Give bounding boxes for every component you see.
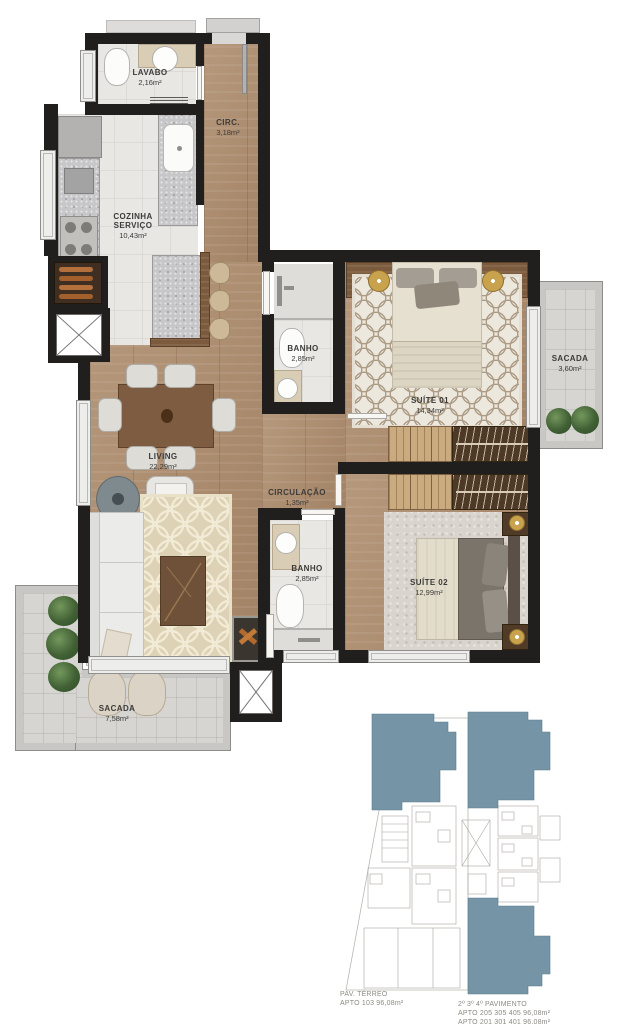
stool-icon [209, 318, 230, 340]
plant-icon [571, 406, 599, 434]
wall [262, 250, 540, 262]
pantry-shelf-icon [54, 262, 102, 304]
wall [333, 262, 345, 412]
plant-icon [48, 596, 80, 626]
entry-door [242, 44, 247, 94]
chair-icon [98, 398, 122, 432]
sliding-door [88, 656, 230, 674]
bed-icon [392, 262, 482, 388]
wall [85, 104, 196, 115]
window [76, 400, 91, 506]
kitchen-peninsula [152, 255, 204, 341]
entry-opening [212, 33, 246, 44]
wall [333, 508, 345, 662]
shower-icon [270, 628, 333, 652]
stool-icon [209, 262, 230, 284]
shaft-icon [56, 314, 102, 356]
wall [196, 44, 204, 66]
door [263, 271, 270, 315]
highlight-unit [468, 898, 550, 994]
door [301, 509, 335, 515]
window [368, 650, 470, 663]
toilet-icon [276, 584, 304, 628]
door [197, 66, 202, 100]
shaft-icon [239, 670, 273, 714]
bar-counter [150, 338, 210, 347]
sink-icon [275, 532, 297, 554]
wall [258, 33, 270, 262]
chair-icon [126, 364, 158, 388]
towel-bar-icon [150, 97, 188, 104]
dining-table-icon [118, 384, 214, 448]
wardrobe-drawers-icon [388, 474, 452, 510]
wall [262, 402, 345, 414]
pouf-icon [88, 670, 126, 716]
highlight-unit [468, 712, 550, 808]
coffee-table-icon [160, 556, 206, 626]
plant-icon [48, 662, 80, 692]
fridge-icon [58, 116, 102, 158]
plant-icon [46, 628, 80, 660]
pouf-icon [128, 670, 166, 716]
window [283, 650, 339, 663]
circulacao-floor [262, 412, 345, 510]
highlight-unit [372, 714, 456, 810]
toilet-icon [104, 48, 130, 86]
chair-icon [126, 446, 158, 470]
window [526, 306, 541, 428]
wall [262, 314, 274, 412]
lamp-icon [509, 515, 525, 531]
plant-icon [546, 408, 572, 434]
toilet-icon [279, 328, 305, 368]
wall [85, 33, 212, 44]
wall [528, 472, 540, 662]
shower-icon [274, 264, 333, 320]
window [80, 50, 96, 102]
chair-icon [164, 446, 196, 470]
stool-icon [209, 290, 230, 312]
service-strip [106, 20, 196, 33]
wall [78, 504, 90, 663]
service-strip [206, 18, 260, 33]
wardrobe-drawers-icon [388, 426, 452, 462]
chair-icon [212, 398, 236, 432]
sink-icon [277, 378, 298, 399]
wall [528, 262, 540, 308]
sink-icon [152, 46, 178, 72]
circ-floor [204, 43, 260, 273]
sofa-icon [86, 512, 144, 666]
window [40, 150, 56, 240]
wardrobe-rail-icon [452, 426, 532, 462]
chair-icon [164, 364, 196, 388]
lamp-icon [482, 270, 504, 292]
wardrobe-rail-icon [452, 474, 532, 510]
door [335, 474, 342, 506]
sink-icon [163, 124, 194, 172]
lamp-icon [509, 629, 525, 645]
keyplan-pavimentos: 2º 3º 4º PAVIMENTO APTO 205 305 405 96,0… [456, 708, 608, 998]
floorplan-sheet: LAVABO2,16m² CIRC.3,18m² COZINHASERVIÇO1… [0, 0, 623, 1024]
door [266, 614, 274, 658]
wall [196, 104, 204, 205]
door [347, 413, 387, 419]
wall [338, 462, 540, 474]
sink-icon [64, 168, 94, 194]
keyplan-pavimentos-caption: 2º 3º 4º PAVIMENTO APTO 205 305 405 96,0… [458, 1000, 623, 1024]
lamp-icon [368, 270, 390, 292]
